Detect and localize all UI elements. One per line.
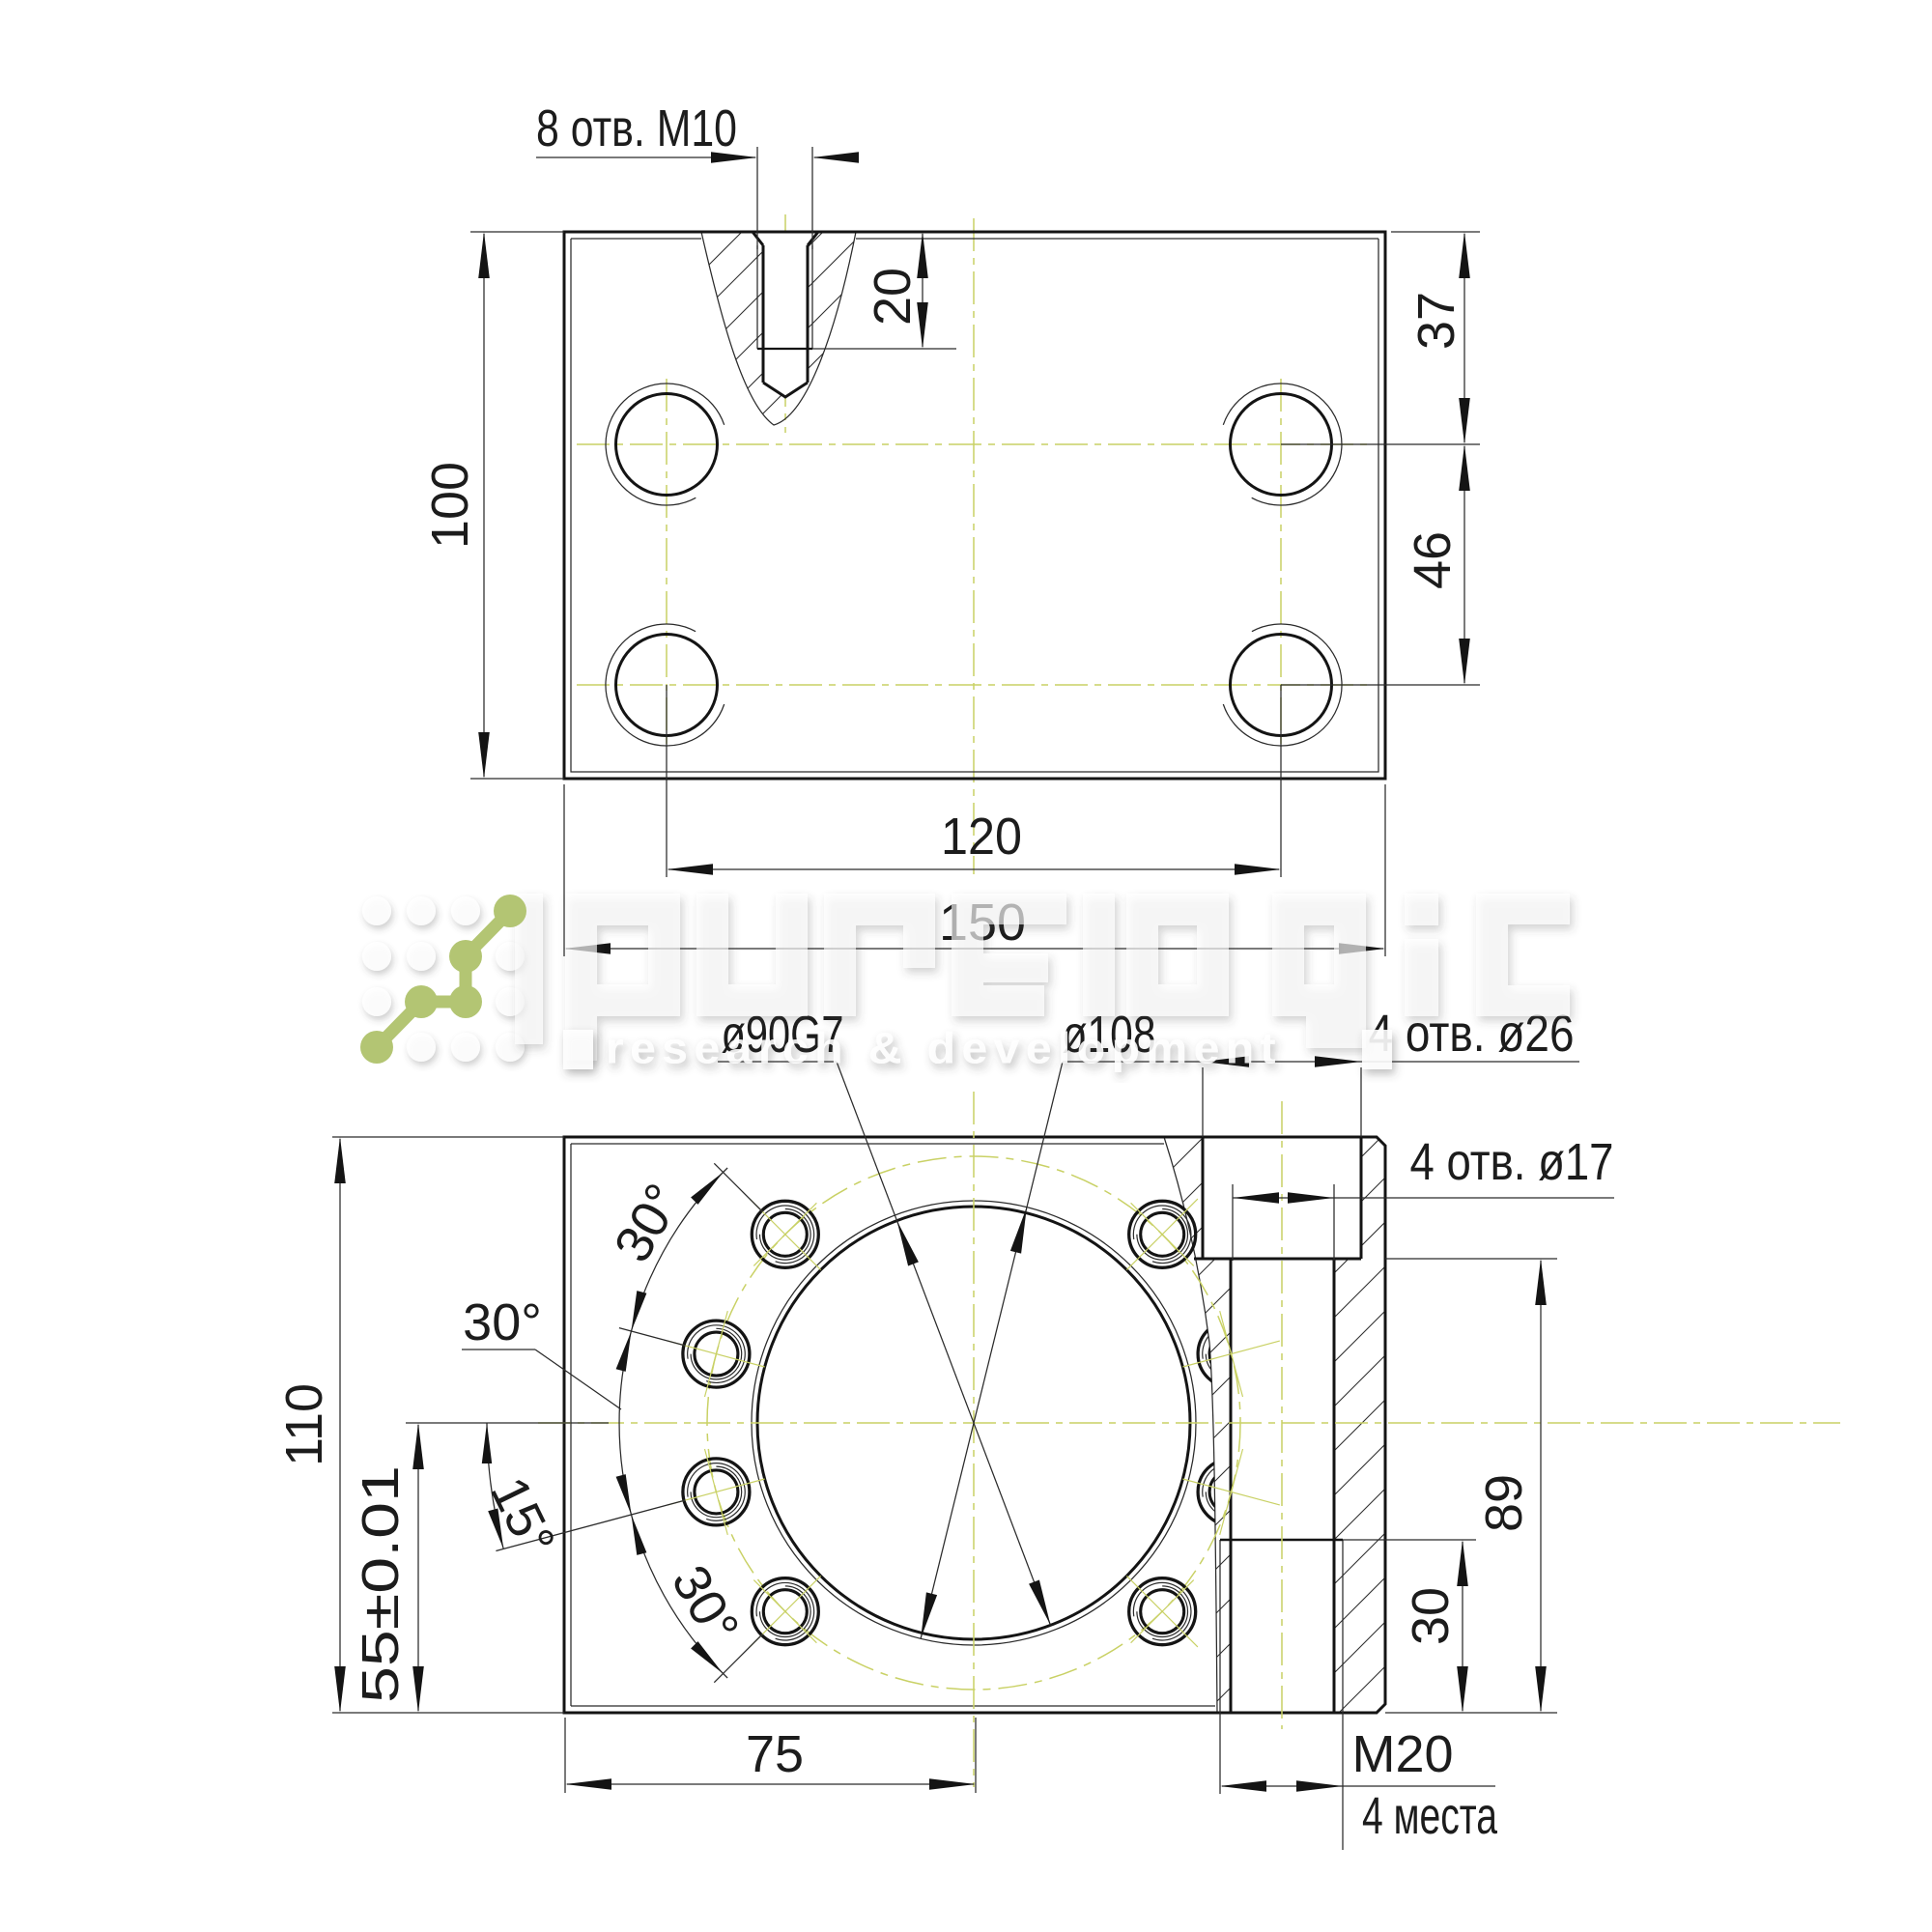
svg-text:30°: 30°: [463, 1293, 542, 1351]
svg-text:46: 46: [1404, 531, 1462, 589]
svg-text:8 отв. М10: 8 отв. М10: [536, 99, 737, 157]
svg-text:89: 89: [1475, 1474, 1533, 1532]
svg-text:100: 100: [421, 462, 479, 549]
svg-text:30: 30: [1402, 1587, 1460, 1645]
svg-text:20: 20: [864, 268, 922, 326]
svg-text:37: 37: [1407, 292, 1465, 350]
svg-text:4 места: 4 места: [1362, 1787, 1498, 1845]
svg-text:120: 120: [941, 808, 1022, 866]
svg-text:110: 110: [275, 1383, 333, 1466]
svg-text:M20: M20: [1351, 1725, 1453, 1783]
svg-text:research & development: research & development: [606, 1024, 1282, 1073]
svg-text:75: 75: [746, 1725, 804, 1783]
svg-text:55±0.01: 55±0.01: [352, 1465, 410, 1703]
svg-text:4 отв. ø17: 4 отв. ø17: [1410, 1133, 1614, 1191]
